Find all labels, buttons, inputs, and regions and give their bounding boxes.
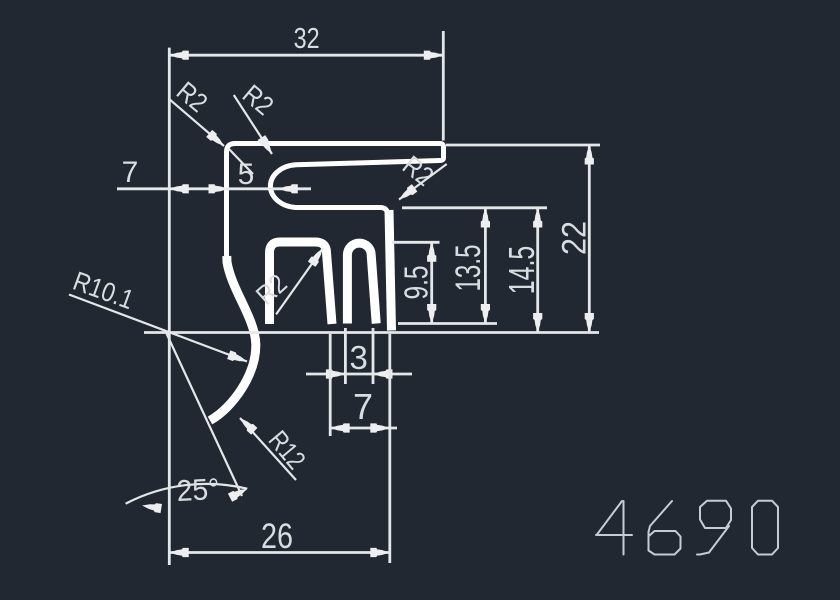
svg-text:26: 26 bbox=[261, 517, 293, 556]
svg-text:7: 7 bbox=[353, 386, 373, 427]
svg-text:R2: R2 bbox=[237, 79, 279, 121]
svg-text:5: 5 bbox=[238, 158, 255, 191]
svg-text:R2: R2 bbox=[250, 268, 292, 310]
svg-text:25°: 25° bbox=[176, 473, 221, 508]
svg-text:9.5: 9.5 bbox=[398, 266, 435, 300]
svg-text:13.5: 13.5 bbox=[449, 245, 488, 292]
svg-text:7: 7 bbox=[122, 156, 139, 189]
svg-text:R2: R2 bbox=[171, 76, 213, 118]
svg-text:3: 3 bbox=[350, 339, 368, 376]
svg-text:22: 22 bbox=[555, 221, 593, 255]
svg-text:14.5: 14.5 bbox=[501, 246, 542, 295]
svg-text:32: 32 bbox=[294, 23, 320, 55]
